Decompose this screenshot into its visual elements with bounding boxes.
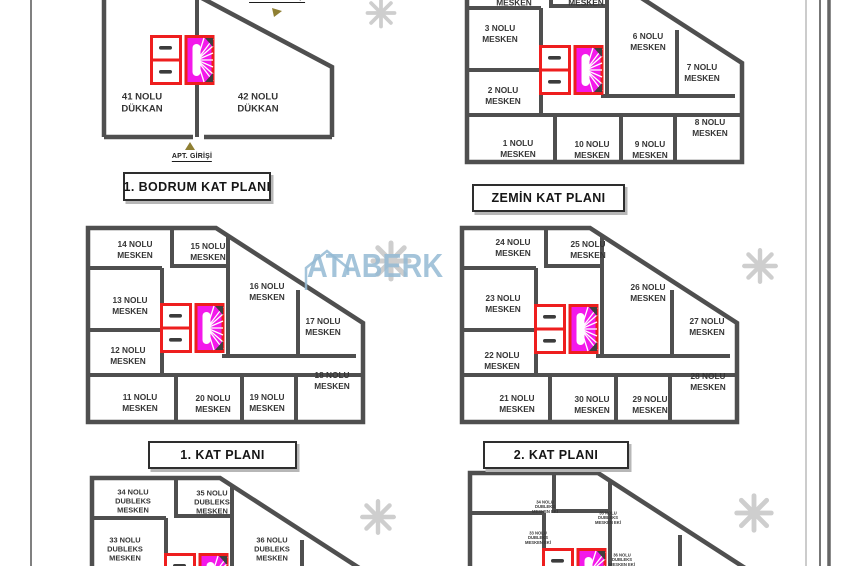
room-label: 25 NOLU MESKEN <box>570 239 606 261</box>
floor-title-kat1: 1. KAT PLANI <box>148 441 297 469</box>
room-label: 22 NOLU MESKEN <box>484 350 520 372</box>
room-label: 35 NOLU DUBLEKS MESKEN <box>194 488 230 515</box>
room-label: 13 NOLU MESKEN <box>112 295 148 317</box>
stair-elevator-core-icon <box>544 550 606 566</box>
room-label: 9 NOLU MESKEN <box>632 139 668 161</box>
shop-entrance-label: DÜKKAN GİRİŞİ <box>249 0 305 3</box>
room-label: 27 NOLU MESKEN <box>689 316 725 338</box>
room-label: 21 NOLU MESKEN <box>499 393 535 415</box>
star-icon <box>368 0 395 26</box>
room-label: 17 NOLU MESKEN <box>305 316 341 338</box>
room-label: 19 NOLU MESKEN <box>249 392 285 414</box>
room-label: 35 NOLU DUBLEKS MESKEN EKİ <box>595 511 621 526</box>
room-label: 34 NOLU DUBLEKS MESKEN <box>115 487 151 514</box>
room-label: 12 NOLU MESKEN <box>110 345 146 367</box>
room-label: 1 NOLU MESKEN <box>500 138 536 160</box>
room-label: 24 NOLU MESKEN <box>495 237 531 259</box>
room-label: 34 NOLU DUBLEKS MESKEN EKİ <box>532 500 558 515</box>
stair-elevator-core-icon <box>536 306 598 353</box>
room-label: 8 NOLU MESKEN <box>692 117 728 139</box>
room-label: 10 NOLU MESKEN <box>574 139 610 161</box>
room-label: 7 NOLU MESKEN <box>684 62 720 84</box>
room-label: 14 NOLU MESKEN <box>117 239 153 261</box>
floor-title-bodrum: 1. BODRUM KAT PLANI <box>123 172 271 201</box>
floor-plan-bodrum-walls <box>104 0 332 137</box>
room-label: 41 NOLU DÜKKAN <box>121 92 162 117</box>
floor-title-zemin: ZEMİN KAT PLANI <box>472 184 625 212</box>
room-label: 11 NOLU MESKEN <box>122 392 158 414</box>
room-label: MESKEN <box>496 0 532 8</box>
watermark-text: ATABERK <box>307 247 443 285</box>
room-label: 16 NOLU MESKEN <box>249 281 285 303</box>
stair-elevator-core-icon <box>152 37 214 84</box>
star-icon <box>362 501 394 533</box>
room-label: 28 NOLU MESKEN <box>690 371 726 393</box>
entrance-arrow-icon <box>272 8 282 17</box>
room-label: 36 NOLU DUBLEKS MESKEN <box>254 535 290 562</box>
stair-elevator-core-icon <box>162 305 224 352</box>
stair-elevator-core-icon <box>166 555 228 566</box>
room-label: 6 NOLU MESKEN <box>630 31 666 53</box>
apartment-entrance-label: APT. GİRİŞİ <box>172 153 212 162</box>
stair-elevator-core-icon <box>541 47 603 94</box>
room-label: 20 NOLU MESKEN <box>195 393 231 415</box>
room-label: 23 NOLU MESKEN <box>485 293 521 315</box>
room-label: MESKEN <box>568 0 604 8</box>
star-icon <box>744 250 776 282</box>
room-label: 2 NOLU MESKEN <box>485 85 521 107</box>
floor-title-kat2: 2. KAT PLANI <box>483 441 629 469</box>
room-label: 33 NOLU DUBLEKS MESKEN EKİ <box>525 531 551 546</box>
room-label: 15 NOLU MESKEN <box>190 241 226 263</box>
floor-plan-sheet: 41 NOLU DÜKKAN 42 NOLU DÜKKAN MESKEN MES… <box>0 0 850 566</box>
room-label: 36 NOLU DUBLEKS MESKEN EKİ <box>609 553 635 566</box>
room-label: 18 NOLU MESKEN <box>314 370 350 392</box>
room-label: 33 NOLU DUBLEKS MESKEN <box>107 535 143 562</box>
room-label: 26 NOLU MESKEN <box>630 282 666 304</box>
room-label: 30 NOLU MESKEN <box>574 394 610 416</box>
star-icon <box>737 496 772 531</box>
room-label: 42 NOLU DÜKKAN <box>237 92 278 117</box>
room-label: 29 NOLU MESKEN <box>632 394 668 416</box>
entrance-arrow-icon <box>185 142 195 150</box>
room-label: 3 NOLU MESKEN <box>482 23 518 45</box>
